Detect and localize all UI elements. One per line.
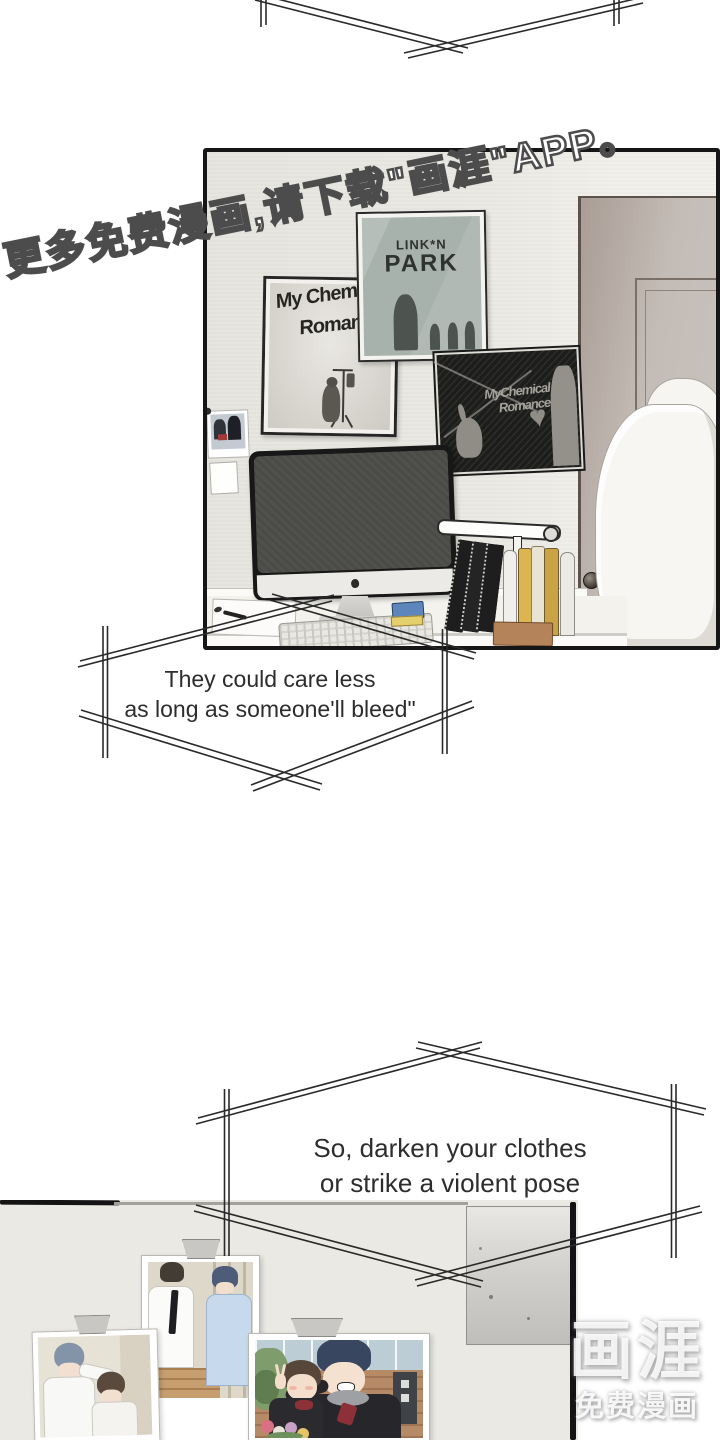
- paper-speck: [489, 1295, 493, 1299]
- photo-selfie-image: [255, 1340, 423, 1438]
- webtoon-page: My Chemical Romance LINK*N PARK MyChemic…: [0, 0, 720, 1440]
- blue-guy-shirt: [206, 1294, 252, 1386]
- apple-logo-icon: [351, 579, 359, 588]
- photo-headpat-image: [38, 1335, 153, 1438]
- figure-head: [326, 377, 337, 387]
- pinned-photo-image: [210, 413, 245, 449]
- lp-figure-small-1: [430, 324, 440, 350]
- panel-photo-wall: [0, 1200, 578, 1440]
- sign-glyph: [401, 1394, 409, 1402]
- tie-guy-hair: [160, 1262, 184, 1282]
- paper-speck: [479, 1247, 482, 1250]
- figure-right-silhouette: [549, 365, 579, 466]
- lyric-line: They could care less: [85, 664, 455, 694]
- bunny-ear: [457, 404, 467, 423]
- lyric-bubble-1: They could care less as long as someone'…: [85, 664, 455, 724]
- white-bookend-right: [560, 552, 575, 636]
- bunny-silhouette: [455, 417, 483, 458]
- paper-speck: [527, 1317, 530, 1320]
- imac-screen: [254, 450, 452, 574]
- lp-figure-large: [393, 294, 418, 350]
- red-collar: [295, 1400, 313, 1410]
- bluehair-guy-face: [58, 1362, 80, 1377]
- sticky-note-pad: [391, 615, 423, 627]
- blush-right: [305, 1386, 313, 1390]
- panel2-top-border-gray: [114, 1202, 468, 1205]
- flower-leaves: [267, 1432, 303, 1438]
- photo-clip-icon: [74, 1315, 110, 1335]
- poster-lp-title2: PARK: [358, 249, 484, 279]
- blush-left: [289, 1386, 297, 1390]
- figure-blob: [227, 416, 241, 440]
- photo-selfie: [248, 1333, 430, 1440]
- poster-mcr-black: MyChemical Romance ♥: [434, 347, 583, 475]
- white-card: [209, 461, 239, 494]
- brownhair-guy-shirt: [91, 1401, 138, 1438]
- sign-glyph: [401, 1380, 409, 1388]
- figure-silhouette: [322, 384, 341, 422]
- blue-guy-face: [216, 1282, 234, 1294]
- panel2-top-border-black: [0, 1200, 120, 1205]
- bluehair-guy-tee: [43, 1376, 97, 1437]
- iv-bag: [346, 373, 354, 387]
- photo-clip-icon: [182, 1239, 220, 1259]
- imac-monitor: [248, 444, 457, 601]
- wood-block: [493, 621, 553, 646]
- pinned-photo: [206, 409, 250, 458]
- lp-figure-small-3: [465, 321, 475, 349]
- huaya-logo: 画涯: [552, 1300, 720, 1392]
- photo-clip-icon: [291, 1318, 343, 1337]
- lyric-line: or strike a violent pose: [235, 1166, 665, 1201]
- photo-headpat: [32, 1328, 161, 1440]
- photo-cafe-image: [148, 1262, 253, 1398]
- iv-crossbar: [333, 369, 353, 371]
- lyric-line: So, darken your clothes: [235, 1131, 665, 1166]
- lyric-bubble-2: So, darken your clothes or strike a viol…: [235, 1131, 665, 1201]
- huaya-logo-tagline: 免费漫画: [552, 1383, 720, 1425]
- red-accent: [218, 434, 227, 440]
- lyric-line: as long as someone'll bleed": [85, 694, 455, 724]
- poster-linkin-park: LINK*N PARK: [356, 210, 489, 362]
- peace-hand: [275, 1374, 286, 1389]
- lamp-joint: [543, 526, 559, 542]
- lp-figure-small-2: [448, 322, 458, 349]
